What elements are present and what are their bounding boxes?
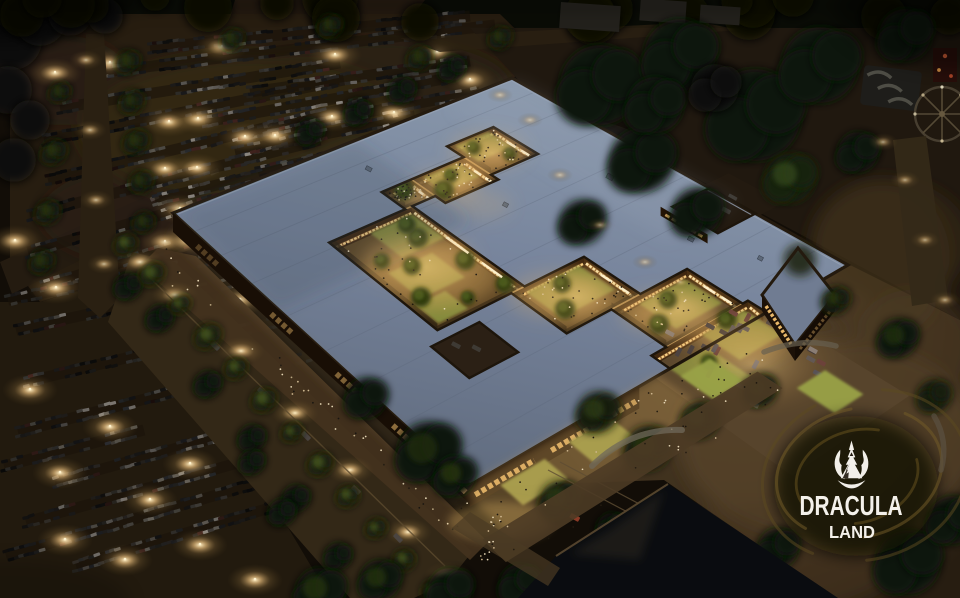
svg-text:DRACULA: DRACULA xyxy=(800,490,903,521)
svg-text:LAND: LAND xyxy=(829,522,875,542)
